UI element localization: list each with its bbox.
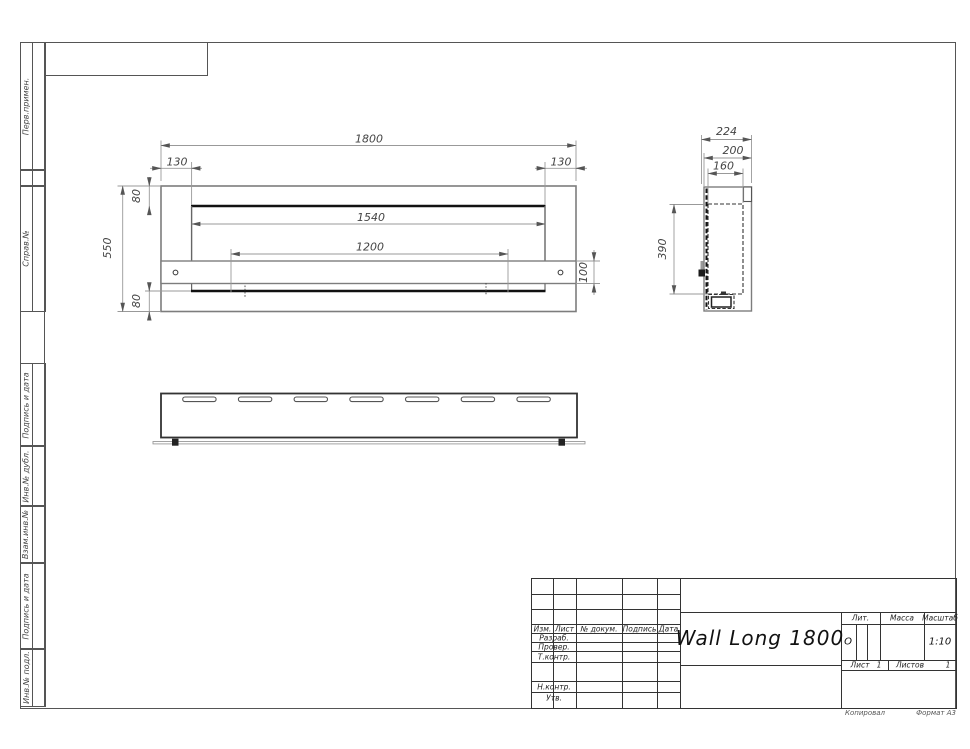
tb-row-nkontr: Н.контр. (537, 682, 571, 691)
format-label: Формат А3 (916, 709, 956, 717)
tb-row-prover: Провер. (538, 642, 569, 651)
tb-line (867, 624, 868, 660)
tb-col-list: Лист (555, 624, 574, 633)
tb-line (856, 624, 857, 660)
tb-line (841, 670, 956, 671)
product-name: Wall Long 1800 (676, 626, 844, 650)
tb-row-razrab: Разраб. (539, 633, 568, 642)
tb-col-podpis: Подпись (623, 624, 657, 633)
tb-sheets-label: Листов (896, 661, 924, 670)
tb-line (576, 579, 577, 708)
tb-col-dokum: № докум. (581, 624, 618, 633)
tb-line (622, 579, 623, 708)
tb-col-izm: Изм. (534, 624, 552, 633)
tb-line (532, 662, 680, 663)
tb-lit-label: Лит. (852, 614, 869, 623)
tb-sheet-value: 1 (877, 661, 882, 670)
tb-line (680, 612, 956, 613)
copied-label: Копировал (845, 709, 885, 717)
margin-box-vzam-inv: Взам.инв.№ (20, 505, 47, 564)
margin-box-inv-dubl: Инв.№ дубл. (20, 445, 47, 507)
margin-label: Подпись и дата (20, 364, 33, 446)
tb-scale-label: Масштаб (922, 614, 958, 623)
tb-row-tkontr: Т.контр. (538, 652, 571, 661)
tb-scale-value: 1:10 (929, 637, 951, 648)
margin-box-podpis-data-1: Подпись и дата (20, 363, 47, 447)
top-reference-box (44, 42, 208, 76)
tb-line (841, 624, 956, 625)
title-block: Изм. Лист № докум. Подпись Дата Разраб. … (531, 578, 957, 709)
margin-label: Инв.№ дубл. (20, 446, 33, 506)
tb-sheets-value: 1 (946, 661, 951, 670)
margin-label: Справ.№ (20, 186, 33, 311)
drawing-sheet: { "sheet": { "copied_label": "Копировал"… (0, 0, 970, 749)
margin-box-sprav: Справ.№ (20, 185, 47, 312)
margin-label: Взам.инв.№ (20, 506, 33, 563)
margin-box-perv-primen: Перв.примен. (20, 42, 47, 171)
tb-sheet-label: Лист (850, 661, 869, 670)
tb-lit-value: О (844, 637, 852, 648)
tb-line (888, 660, 889, 670)
tb-line (680, 665, 841, 666)
tb-line (532, 594, 680, 595)
tb-line (880, 612, 881, 660)
tb-line (657, 579, 658, 708)
tb-row-utv: Утв. (546, 694, 562, 703)
tb-mass-label: Масса (890, 614, 914, 623)
margin-label: Подпись и дата (20, 563, 33, 649)
margin-label: Инв.№ подл. (20, 649, 33, 706)
tb-line (532, 609, 680, 610)
margin-box-inv-podl: Инв.№ подл. (20, 648, 47, 707)
margin-box-podpis-data-2: Подпись и дата (20, 562, 47, 650)
margin-label: Перв.примен. (20, 43, 33, 170)
